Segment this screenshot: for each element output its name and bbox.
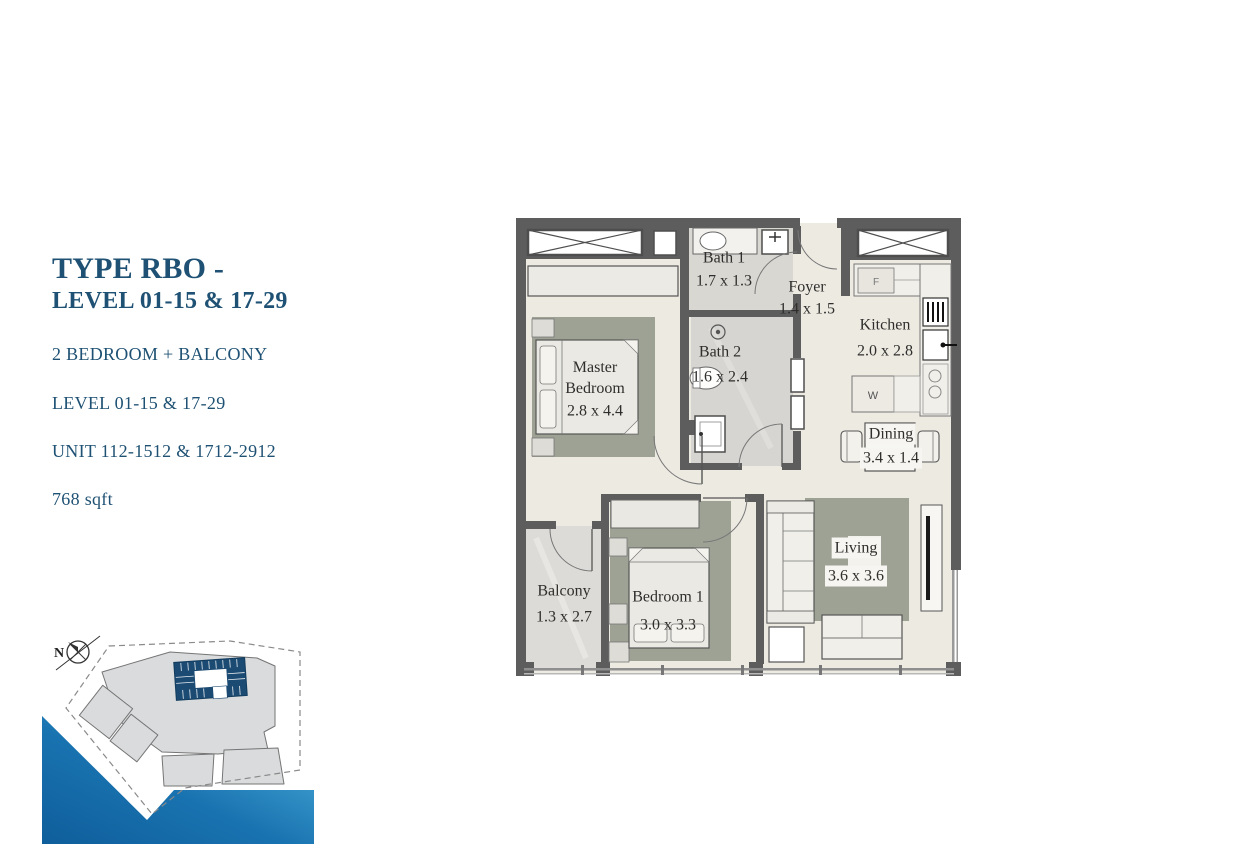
plan-units: UNIT 112-1512 & 1712-2912 — [52, 441, 276, 462]
plan-title-line1: TYPE RBO - — [52, 252, 224, 285]
plan-area: 768 sqft — [52, 489, 113, 510]
plan-subtitle: 2 BEDROOM + BALCONY — [52, 344, 267, 365]
compass-north-icon: N — [54, 636, 100, 670]
plan-title: TYPE RBO - LEVEL 01-15 & 17-29 — [52, 254, 288, 316]
plan-title-line2: LEVEL 01-15 & 17-29 — [52, 286, 288, 316]
compass-north-label: N — [54, 646, 64, 661]
floor-plan: W F — [516, 218, 961, 692]
site-map-svg: N — [42, 630, 314, 848]
site-map: N — [42, 630, 314, 848]
washer-label: W — [868, 390, 879, 402]
fridge-label: F — [873, 277, 879, 288]
floorplan-sheet: TYPE RBO - LEVEL 01-15 & 17-29 2 BEDROOM… — [0, 0, 1238, 860]
floor-plan-svg: W F — [516, 218, 961, 692]
plan-level: LEVEL 01-15 & 17-29 — [52, 393, 226, 414]
highlighted-building — [174, 658, 248, 702]
